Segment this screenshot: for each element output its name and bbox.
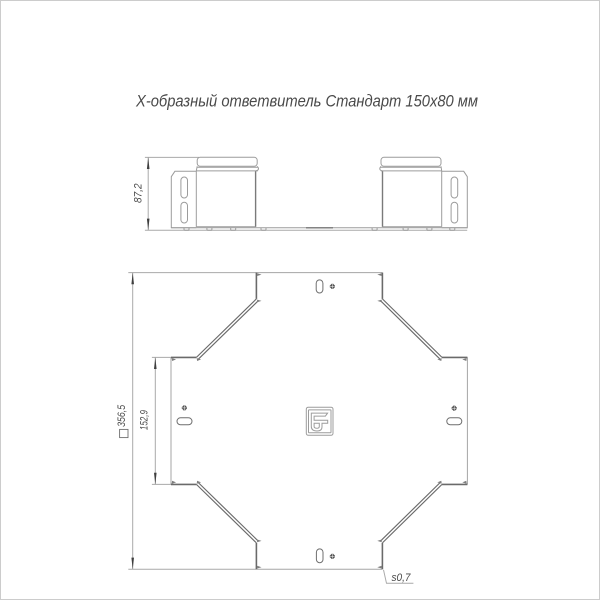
svg-text:87,2: 87,2	[133, 183, 145, 203]
svg-text:152,9: 152,9	[139, 410, 151, 430]
svg-text:Х-образный ответвитель Стандар: Х-образный ответвитель Стандарт 150х80 м…	[135, 91, 478, 110]
svg-text:356,5: 356,5	[116, 404, 128, 427]
svg-text:s0,7: s0,7	[392, 572, 412, 584]
